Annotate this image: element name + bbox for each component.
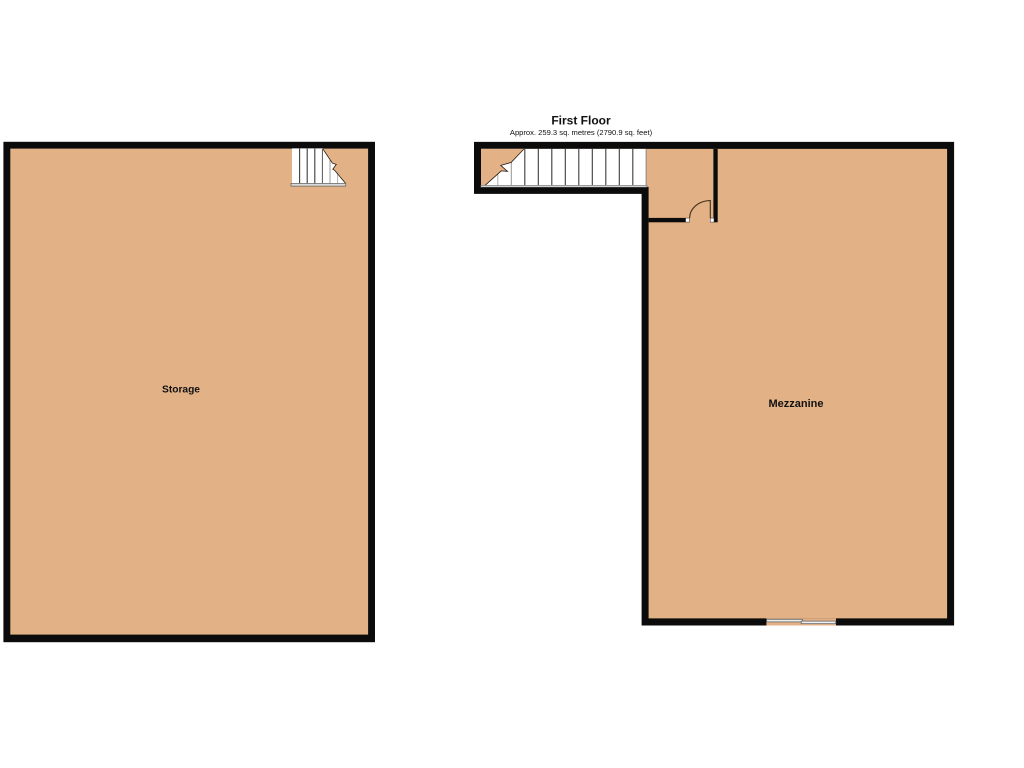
svg-text:Approx. 259.3 sq. metres (2790: Approx. 259.3 sq. metres (2790.9 sq. fee…	[510, 128, 653, 137]
svg-text:Storage: Storage	[162, 385, 200, 396]
svg-text:First Floor: First Floor	[551, 114, 611, 128]
svg-text:Mezzanine: Mezzanine	[768, 398, 823, 410]
